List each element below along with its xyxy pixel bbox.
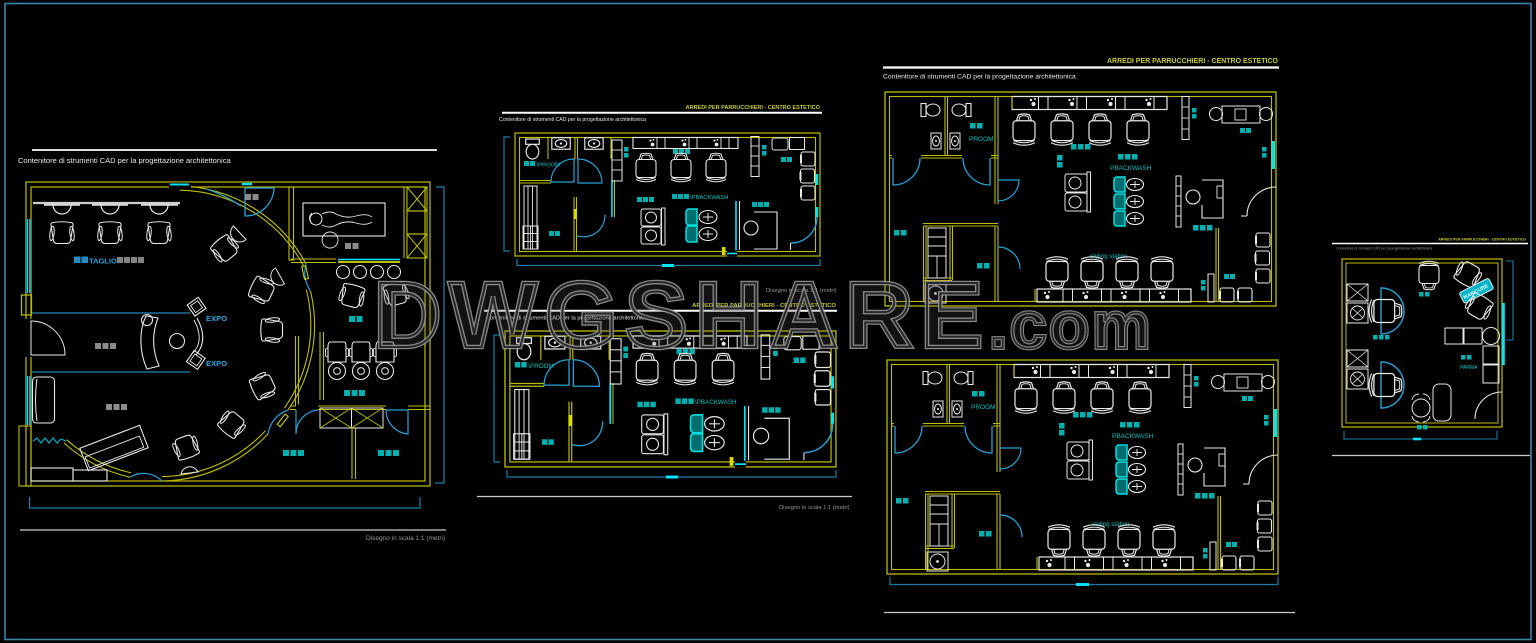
svg-text:EXPO: EXPO (206, 314, 227, 323)
svg-text:Contenitore di strumenti CAD p: Contenitore di strumenti CAD per la prog… (883, 74, 1076, 81)
svg-text:EXPO: EXPO (206, 359, 227, 368)
svg-text:PARMA: PARMA (1460, 365, 1478, 371)
svg-text:ARREDI PER PARRUCCHIERI - CENT: ARREDI PER PARRUCCHIERI - CENTRO ESTETIC… (1107, 58, 1279, 65)
svg-text:Disegno in scala 1:1 (metri): Disegno in scala 1:1 (metri) (366, 535, 445, 542)
svg-text:ARREDI PER PARRUCCHIERI - CENT: ARREDI PER PARRUCCHIERI - CENTRO ESTETIC… (1438, 238, 1526, 242)
svg-text:.com: .com (989, 288, 1153, 362)
svg-text:Contenitore di strumenti CAD p: Contenitore di strumenti CAD per la prog… (18, 156, 231, 165)
svg-text:TAGLIO: TAGLIO (89, 257, 117, 266)
svg-text:Contenitore di strumenti CAD p: Contenitore di strumenti CAD per la prog… (499, 117, 646, 123)
svg-text:DWGSHARE: DWGSHARE (374, 263, 991, 367)
svg-text:Contenitore di strumenti CAD p: Contenitore di strumenti CAD per la prog… (1336, 247, 1432, 251)
svg-text:Disegno in scala 1:1 (metri): Disegno in scala 1:1 (metri) (779, 505, 850, 511)
svg-text:ARREDI PER PARRUCCHIERI - CENT: ARREDI PER PARRUCCHIERI - CENTRO ESTETIC… (686, 105, 821, 111)
